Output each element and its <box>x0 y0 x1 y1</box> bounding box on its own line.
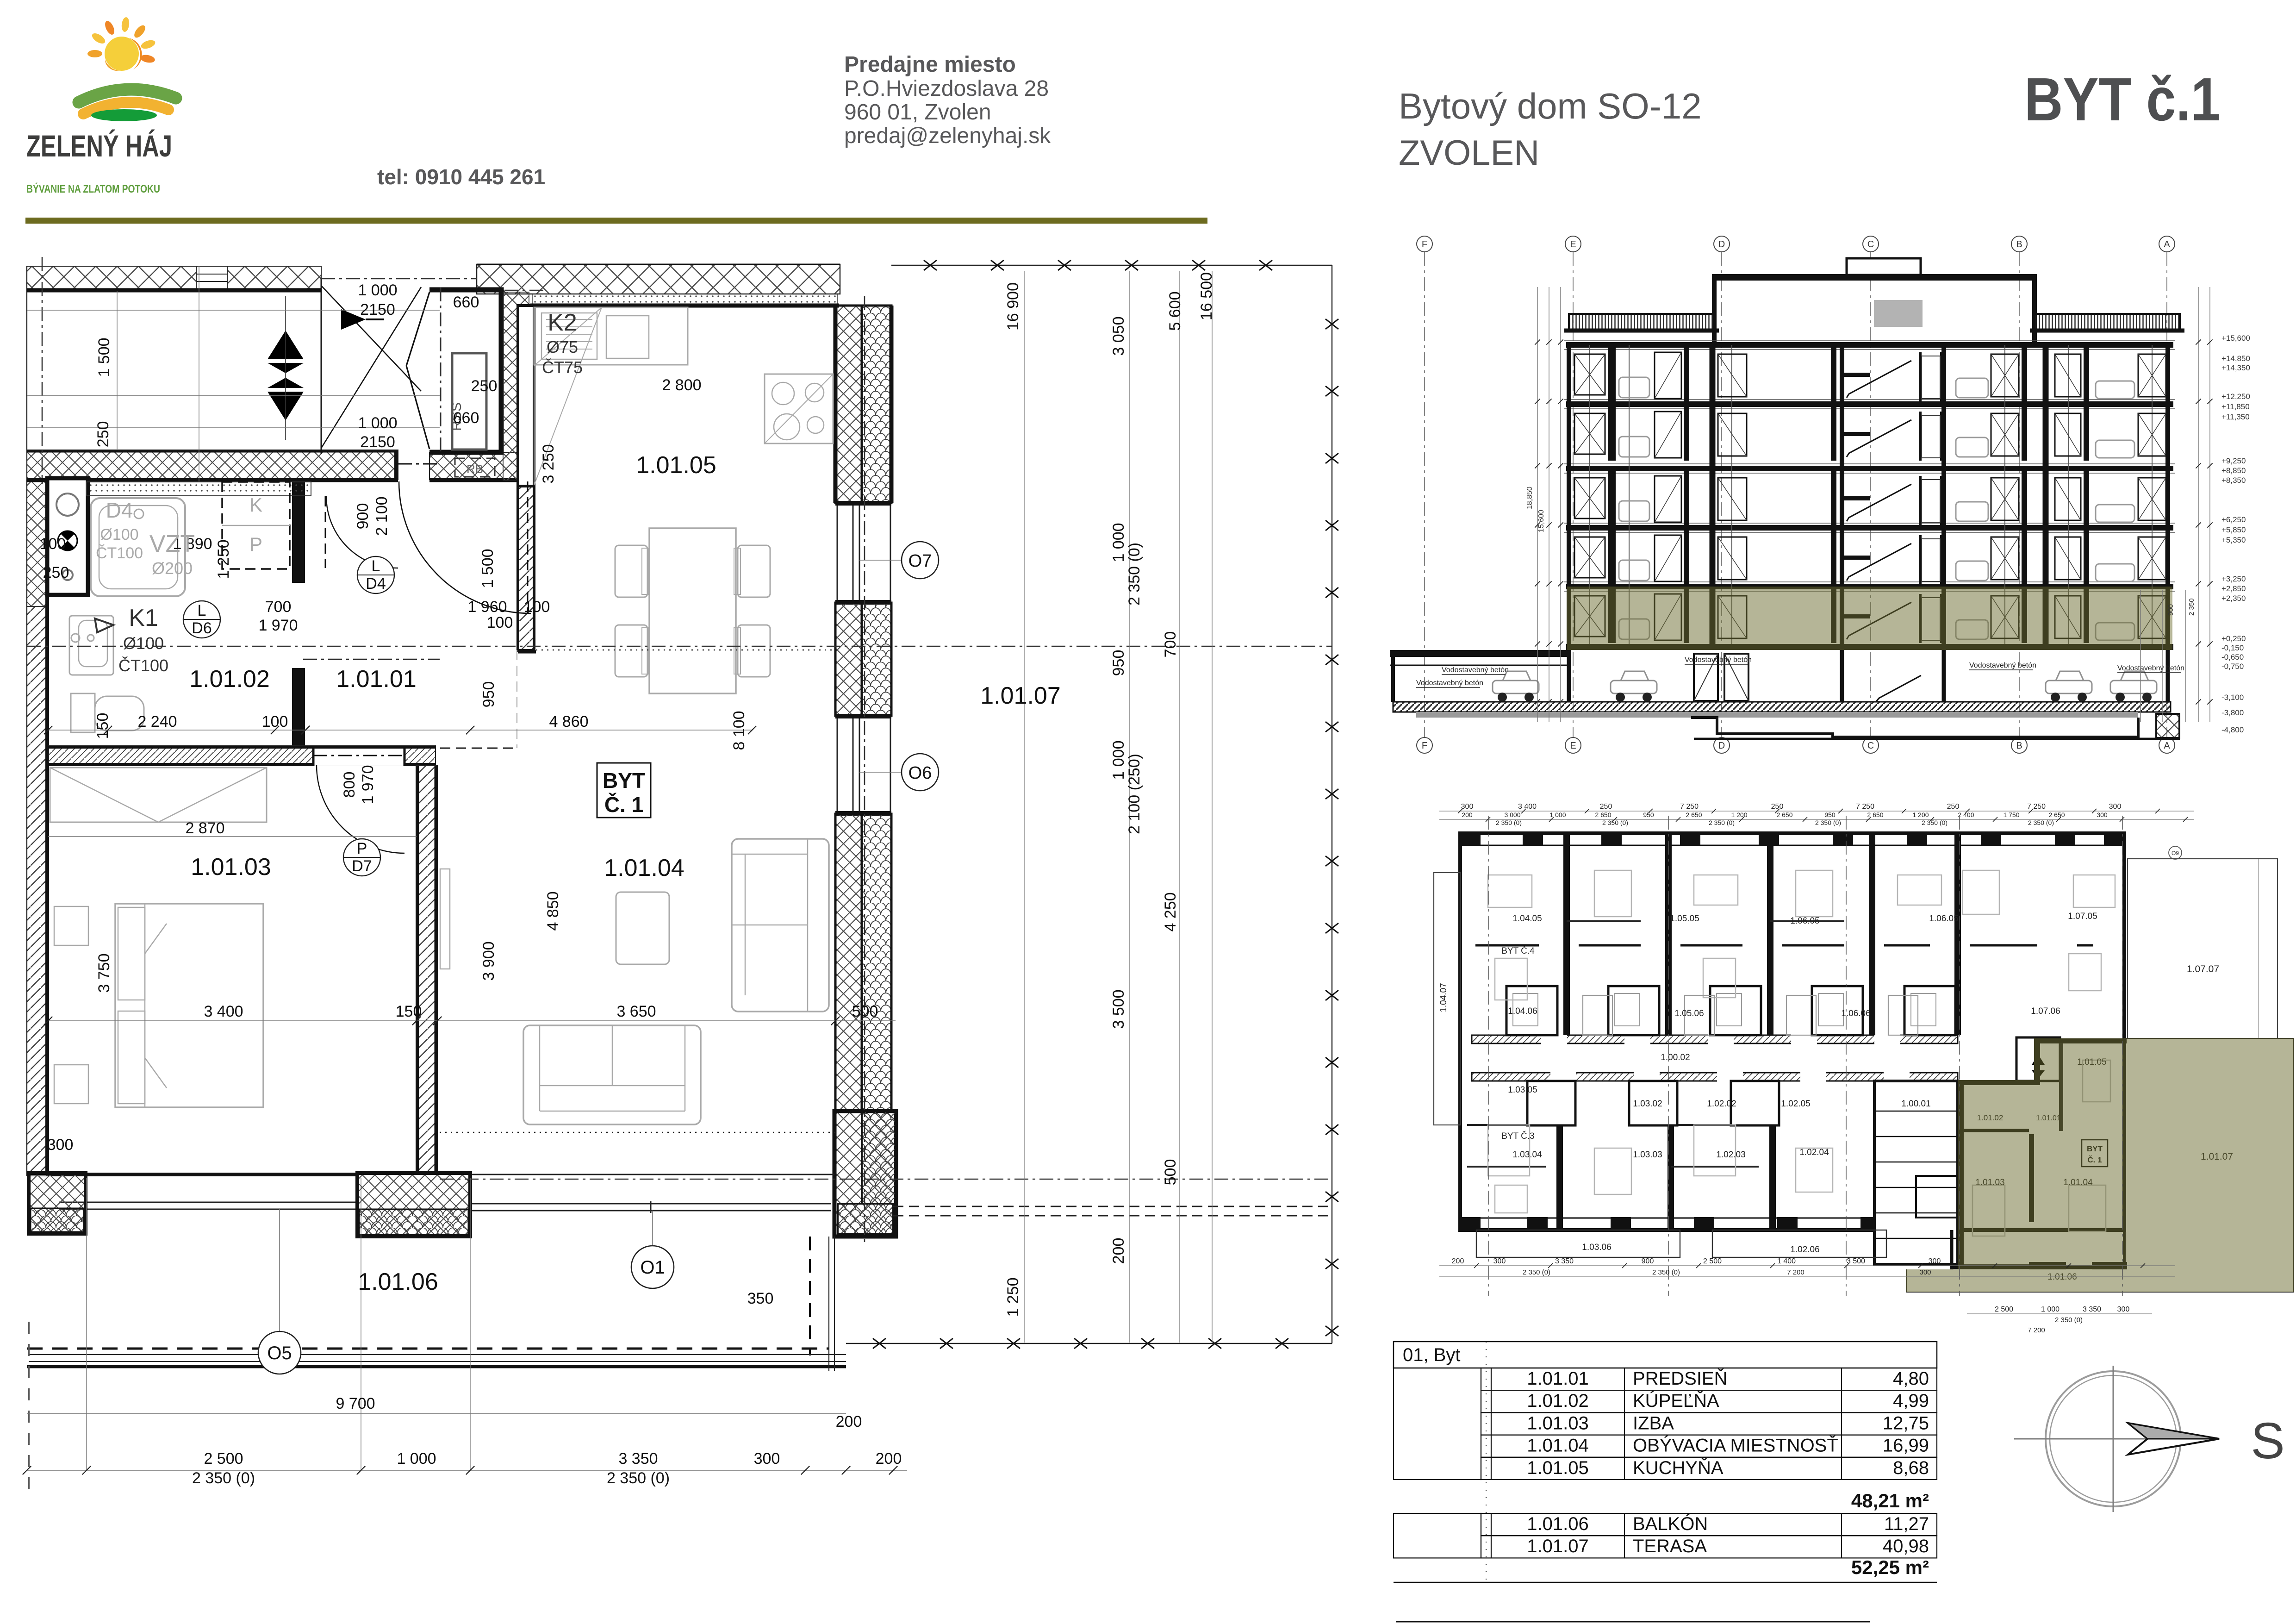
svg-text:1.01.06: 1.01.06 <box>358 1268 438 1295</box>
svg-text:D: D <box>1718 239 1725 250</box>
svg-text:+14,850: +14,850 <box>2221 354 2250 363</box>
svg-text:1.04.06: 1.04.06 <box>1508 1006 1537 1016</box>
svg-text:300: 300 <box>47 1136 74 1154</box>
svg-text:200: 200 <box>1452 1257 1464 1265</box>
svg-text:16 500: 16 500 <box>1198 272 1215 320</box>
svg-text:100: 100 <box>262 713 288 731</box>
svg-text:PREDSIEŇ: PREDSIEŇ <box>1633 1368 1728 1389</box>
svg-text:1.00.02: 1.00.02 <box>1661 1053 1690 1062</box>
svg-text:2 350: 2 350 <box>2188 598 2196 616</box>
svg-text:2 350 (0): 2 350 (0) <box>1922 819 1948 826</box>
svg-text:+6,250: +6,250 <box>2221 515 2246 524</box>
svg-text:1 750: 1 750 <box>2003 811 2019 818</box>
svg-text:K2: K2 <box>548 309 577 336</box>
svg-text:1 970: 1 970 <box>359 765 377 804</box>
svg-text:+5,350: +5,350 <box>2221 536 2246 544</box>
svg-text:800: 800 <box>341 772 358 798</box>
svg-text:IZBA: IZBA <box>1633 1413 1674 1433</box>
svg-text:250: 250 <box>471 377 498 395</box>
svg-text:1 000: 1 000 <box>397 1450 436 1468</box>
svg-text:BYT Č.4: BYT Č.4 <box>1501 946 1535 956</box>
svg-text:300: 300 <box>2117 1305 2130 1313</box>
svg-text:1 000: 1 000 <box>2041 1305 2060 1313</box>
svg-text:E: E <box>1570 239 1576 250</box>
svg-text:2 350 (0): 2 350 (0) <box>1523 1268 1550 1276</box>
svg-text:300: 300 <box>2109 803 2122 811</box>
svg-text:48,21 m²: 48,21 m² <box>1851 1490 1929 1512</box>
svg-text:RB: RB <box>467 462 483 476</box>
svg-text:1 250: 1 250 <box>1004 1277 1022 1317</box>
svg-text:300: 300 <box>1929 1257 1941 1265</box>
svg-text:3 400: 3 400 <box>204 1003 243 1020</box>
svg-text:2150: 2150 <box>360 433 395 451</box>
svg-text:P: P <box>249 533 262 555</box>
svg-text:3 350: 3 350 <box>2083 1305 2101 1313</box>
svg-text:100: 100 <box>40 535 66 553</box>
svg-text:2 500: 2 500 <box>1703 1257 1722 1265</box>
svg-text:1.04.05: 1.04.05 <box>1512 914 1542 924</box>
svg-text:1.01.02: 1.01.02 <box>1527 1391 1588 1411</box>
svg-text:1.01.01: 1.01.01 <box>1527 1368 1588 1389</box>
svg-text:S: S <box>2251 1412 2284 1469</box>
svg-text:950: 950 <box>1110 650 1127 676</box>
svg-text:Bytový dom SO-12: Bytový dom SO-12 <box>1399 86 1702 126</box>
svg-text:KÚPEĽŇA: KÚPEĽŇA <box>1633 1390 1719 1411</box>
svg-text:3 500: 3 500 <box>1847 1257 1865 1265</box>
svg-text:+2,850: +2,850 <box>2221 584 2246 593</box>
svg-text:2 650: 2 650 <box>1867 811 1883 818</box>
svg-text:2 650: 2 650 <box>1595 811 1611 818</box>
svg-text:A: A <box>2164 239 2170 250</box>
svg-text:1.06.05: 1.06.05 <box>1790 916 1819 926</box>
svg-text:2 400: 2 400 <box>1958 811 1974 818</box>
svg-text:ČT100: ČT100 <box>118 656 168 675</box>
svg-text:1.03.02: 1.03.02 <box>1633 1099 1662 1109</box>
svg-text:1 200: 1 200 <box>1731 811 1747 818</box>
svg-text:3 350: 3 350 <box>618 1450 658 1468</box>
svg-text:1.07.07: 1.07.07 <box>2187 964 2219 974</box>
svg-text:250: 250 <box>94 421 112 448</box>
svg-text:4,99: 4,99 <box>1893 1391 1929 1411</box>
svg-text:250: 250 <box>1947 803 1960 811</box>
svg-text:BALKÓN: BALKÓN <box>1633 1513 1708 1534</box>
svg-text:8 100: 8 100 <box>730 711 748 750</box>
svg-text:2 350 (0): 2 350 (0) <box>1126 543 1143 606</box>
svg-text:1.01.02: 1.01.02 <box>189 666 270 693</box>
svg-text:2 100: 2 100 <box>373 496 391 536</box>
svg-text:1.02.03: 1.02.03 <box>1716 1150 1745 1160</box>
svg-text:250: 250 <box>43 564 69 581</box>
svg-text:F: F <box>1422 239 1427 250</box>
svg-text:1.07.06: 1.07.06 <box>2031 1006 2060 1016</box>
svg-text:100: 100 <box>524 598 550 616</box>
svg-text:D6: D6 <box>192 619 212 637</box>
svg-text:700: 700 <box>1162 631 1179 658</box>
svg-text:K: K <box>249 494 262 516</box>
svg-text:+5,850: +5,850 <box>2221 525 2246 534</box>
svg-text:5 600: 5 600 <box>1166 291 1184 331</box>
svg-text:2 350 (0): 2 350 (0) <box>2055 1316 2083 1324</box>
svg-text:660: 660 <box>453 294 479 311</box>
svg-text:01, Byt: 01, Byt <box>1403 1345 1461 1365</box>
svg-text:1.04.07: 1.04.07 <box>1439 983 1449 1012</box>
svg-text:Ø100: Ø100 <box>123 634 164 653</box>
svg-text:BÝVANIE NA ZLATOM POTOKU: BÝVANIE NA ZLATOM POTOKU <box>26 182 160 195</box>
svg-text:2 350 (0): 2 350 (0) <box>1652 1268 1680 1276</box>
svg-text:15,600: 15,600 <box>1537 510 1545 532</box>
svg-text:Ø75: Ø75 <box>547 337 578 356</box>
svg-text:200: 200 <box>1462 811 1473 818</box>
svg-text:1 000: 1 000 <box>1549 811 1566 818</box>
svg-text:1 000: 1 000 <box>358 414 397 432</box>
svg-text:7 250: 7 250 <box>1680 803 1699 811</box>
svg-text:-0,150: -0,150 <box>2221 643 2244 652</box>
svg-text:4 860: 4 860 <box>549 713 588 731</box>
svg-text:L: L <box>198 602 206 619</box>
svg-text:1.02.04: 1.02.04 <box>1799 1148 1829 1157</box>
svg-text:1.01.06: 1.01.06 <box>1527 1514 1588 1534</box>
svg-text:200: 200 <box>1110 1238 1127 1264</box>
svg-text:1 000: 1 000 <box>1110 740 1127 780</box>
svg-text:1 500: 1 500 <box>95 337 113 377</box>
svg-text:1 500: 1 500 <box>479 549 497 588</box>
svg-text:P.O.Hviezdoslava 28: P.O.Hviezdoslava 28 <box>844 76 1049 101</box>
svg-text:1.03.05: 1.03.05 <box>1508 1085 1537 1095</box>
svg-text:1.03.03: 1.03.03 <box>1633 1150 1662 1160</box>
svg-text:BYT Č.3: BYT Č.3 <box>1501 1131 1534 1141</box>
svg-text:1.01.03: 1.01.03 <box>1527 1413 1588 1433</box>
svg-text:P: P <box>357 840 367 857</box>
svg-text:900: 900 <box>1642 1257 1654 1265</box>
svg-text:Vodostavebný betón: Vodostavebný betón <box>2117 664 2184 672</box>
svg-text:3 750: 3 750 <box>95 953 113 993</box>
svg-text:900: 900 <box>2167 604 2175 616</box>
svg-text:+12,250: +12,250 <box>2221 392 2250 401</box>
svg-text:2 100 (250): 2 100 (250) <box>1126 754 1143 834</box>
svg-text:A: A <box>2164 741 2170 751</box>
svg-text:2 240: 2 240 <box>137 713 177 731</box>
svg-text:9 700: 9 700 <box>336 1395 375 1412</box>
svg-text:3 050: 3 050 <box>1110 316 1127 356</box>
svg-text:1.06.06: 1.06.06 <box>1841 1009 1870 1018</box>
svg-text:200: 200 <box>876 1450 902 1468</box>
svg-text:2 350 (0): 2 350 (0) <box>1709 819 1735 826</box>
svg-text:C: C <box>1867 741 1874 751</box>
svg-text:3 900: 3 900 <box>480 941 498 981</box>
svg-text:3 000: 3 000 <box>1504 811 1520 818</box>
svg-text:ČT75: ČT75 <box>542 358 583 377</box>
svg-text:2 350 (0): 2 350 (0) <box>607 1469 670 1487</box>
svg-text:2 800: 2 800 <box>662 376 701 394</box>
svg-text:7 200: 7 200 <box>1787 1268 1804 1276</box>
svg-text:1.02.02: 1.02.02 <box>1707 1099 1736 1109</box>
svg-text:7 250: 7 250 <box>2027 803 2046 811</box>
svg-text:300: 300 <box>1461 803 1474 811</box>
svg-text:1 400: 1 400 <box>1777 1257 1796 1265</box>
svg-text:2 350 (0): 2 350 (0) <box>1815 819 1841 826</box>
svg-text:1.02.06: 1.02.06 <box>1790 1245 1819 1255</box>
svg-text:+8,350: +8,350 <box>2221 476 2246 485</box>
svg-text:960 01, Zvolen: 960 01, Zvolen <box>844 100 991 125</box>
svg-text:2 500: 2 500 <box>1995 1305 2013 1313</box>
svg-text:1.03.06: 1.03.06 <box>1582 1243 1611 1252</box>
svg-text:2 350 (0): 2 350 (0) <box>1602 819 1628 826</box>
svg-text:1 200: 1 200 <box>1912 811 1929 818</box>
svg-text:2 650: 2 650 <box>2048 811 2065 818</box>
svg-text:K1: K1 <box>129 605 158 631</box>
svg-text:2150: 2150 <box>360 301 395 319</box>
svg-text:16,99: 16,99 <box>1883 1436 1929 1456</box>
svg-text:150: 150 <box>94 713 112 739</box>
svg-text:1.07.05: 1.07.05 <box>2068 912 2097 921</box>
svg-text:Predajne miesto: Predajne miesto <box>844 52 1016 77</box>
svg-text:Vodostavebný betón: Vodostavebný betón <box>1685 656 1752 664</box>
svg-text:BYT č.1: BYT č.1 <box>2024 65 2221 133</box>
svg-text:2 650: 2 650 <box>1776 811 1792 818</box>
svg-text:12,75: 12,75 <box>1883 1413 1929 1433</box>
svg-text:4 850: 4 850 <box>544 891 562 931</box>
svg-text:1.03.04: 1.03.04 <box>1512 1150 1542 1160</box>
svg-text:TERASA: TERASA <box>1633 1536 1707 1556</box>
svg-text:3 500: 3 500 <box>1110 989 1127 1029</box>
svg-text:300: 300 <box>754 1450 780 1468</box>
svg-text:-0,750: -0,750 <box>2221 662 2244 671</box>
svg-text:1.01.07: 1.01.07 <box>980 682 1061 709</box>
svg-text:ČT100: ČT100 <box>96 544 143 562</box>
svg-text:2 650: 2 650 <box>1686 811 1702 818</box>
svg-text:300: 300 <box>2097 811 2108 818</box>
svg-text:+2,350: +2,350 <box>2221 594 2246 603</box>
svg-text:200: 200 <box>836 1413 862 1430</box>
svg-text:Vodostavebný betón: Vodostavebný betón <box>1416 679 1483 687</box>
svg-text:O9: O9 <box>2172 850 2179 856</box>
svg-text:11,27: 11,27 <box>1884 1514 1929 1534</box>
svg-text:40,98: 40,98 <box>1883 1536 1929 1556</box>
svg-text:7 250: 7 250 <box>1856 803 1874 811</box>
svg-text:1.01.05: 1.01.05 <box>1527 1458 1588 1478</box>
svg-text:KUCHYŇA: KUCHYŇA <box>1633 1457 1724 1478</box>
svg-text:2 500: 2 500 <box>204 1450 243 1468</box>
svg-text:1 000: 1 000 <box>358 281 397 299</box>
svg-text:BYT: BYT <box>603 768 645 793</box>
svg-text:ZVOLEN: ZVOLEN <box>1399 133 1539 173</box>
svg-text:500: 500 <box>1162 1159 1179 1186</box>
svg-text:O5: O5 <box>267 1343 292 1363</box>
svg-text:D: D <box>1718 741 1725 751</box>
svg-text:950: 950 <box>1643 811 1654 818</box>
svg-text:E: E <box>1570 741 1576 751</box>
svg-text:1 250: 1 250 <box>215 539 232 579</box>
svg-text:250: 250 <box>1771 803 1784 811</box>
svg-text:+8,850: +8,850 <box>2221 466 2246 475</box>
svg-text:-0,650: -0,650 <box>2221 653 2244 662</box>
svg-text:predaj@zelenyhaj.sk: predaj@zelenyhaj.sk <box>844 124 1051 148</box>
svg-text:1 000: 1 000 <box>1110 523 1127 562</box>
svg-text:3 250: 3 250 <box>540 444 557 483</box>
svg-text:F: F <box>1422 741 1427 751</box>
svg-text:300: 300 <box>1919 1268 1931 1276</box>
svg-text:1 970: 1 970 <box>258 617 298 634</box>
svg-text:16 900: 16 900 <box>1004 282 1022 331</box>
svg-text:Č. 1: Č. 1 <box>604 793 643 817</box>
svg-text:1.05.05: 1.05.05 <box>1670 914 1699 924</box>
svg-text:4 250: 4 250 <box>1162 892 1179 931</box>
svg-text:+14,350: +14,350 <box>2221 363 2250 372</box>
svg-text:1.01.03: 1.01.03 <box>191 854 271 881</box>
svg-text:250: 250 <box>1600 803 1612 811</box>
svg-text:+15,600: +15,600 <box>2221 334 2250 343</box>
svg-text:1.01.05: 1.01.05 <box>636 452 716 479</box>
svg-text:O1: O1 <box>640 1257 665 1278</box>
svg-text:1.01.04: 1.01.04 <box>604 855 684 881</box>
svg-text:O6: O6 <box>908 763 932 783</box>
svg-text:+11,350: +11,350 <box>2221 412 2250 421</box>
svg-text:1.01.04: 1.01.04 <box>1527 1436 1588 1456</box>
svg-text:D7: D7 <box>352 857 372 875</box>
svg-text:2 350 (0): 2 350 (0) <box>192 1469 255 1487</box>
svg-text:1.06.05: 1.06.05 <box>1929 914 1958 924</box>
svg-text:D4: D4 <box>106 498 133 522</box>
svg-text:3 650: 3 650 <box>616 1003 656 1020</box>
svg-text:Vodostavebný betón: Vodostavebný betón <box>1442 666 1509 674</box>
svg-text:L: L <box>372 557 380 575</box>
svg-text:VZT: VZT <box>149 531 195 557</box>
svg-text:300: 300 <box>1493 1257 1506 1265</box>
svg-text:8,68: 8,68 <box>1893 1458 1929 1478</box>
svg-text:B: B <box>2016 239 2022 250</box>
svg-text:B: B <box>2016 741 2022 751</box>
svg-text:-4,800: -4,800 <box>2221 725 2244 734</box>
svg-text:D4: D4 <box>366 575 386 593</box>
svg-text:900: 900 <box>354 503 372 530</box>
svg-text:+3,250: +3,250 <box>2221 575 2246 583</box>
svg-text:150: 150 <box>396 1003 422 1020</box>
svg-text:2 350 (0): 2 350 (0) <box>2028 819 2054 826</box>
svg-text:1.02.05: 1.02.05 <box>1781 1099 1810 1109</box>
svg-text:C: C <box>1867 239 1874 250</box>
svg-text:500: 500 <box>852 1003 878 1020</box>
svg-text:OBÝVACIA MIESTNOSŤ: OBÝVACIA MIESTNOSŤ <box>1633 1435 1838 1456</box>
svg-text:950: 950 <box>480 681 498 708</box>
svg-text:700: 700 <box>265 598 292 616</box>
svg-text:ZELENÝ HÁJ: ZELENÝ HÁJ <box>26 129 172 163</box>
svg-text:4,80: 4,80 <box>1893 1368 1929 1389</box>
svg-text:950: 950 <box>1824 811 1836 818</box>
svg-text:100: 100 <box>487 614 513 631</box>
svg-text:+0,250: +0,250 <box>2221 634 2246 643</box>
svg-text:tel: 0910 445 261: tel: 0910 445 261 <box>377 165 545 189</box>
svg-text:1.00.01: 1.00.01 <box>1901 1099 1930 1109</box>
svg-text:7 200: 7 200 <box>2028 1326 2045 1334</box>
svg-text:-3,100: -3,100 <box>2221 693 2244 702</box>
svg-text:Ø100: Ø100 <box>100 526 138 543</box>
svg-text:2 870: 2 870 <box>185 819 224 837</box>
svg-text:Vodostavebný betón: Vodostavebný betón <box>1969 662 2036 669</box>
svg-text:1.05.06: 1.05.06 <box>1674 1009 1704 1018</box>
svg-text:2 350 (0): 2 350 (0) <box>1496 819 1522 826</box>
svg-text:1.01.01: 1.01.01 <box>336 666 417 693</box>
svg-text:-3,800: -3,800 <box>2221 708 2244 717</box>
svg-text:18,850: 18,850 <box>1526 487 1534 509</box>
svg-text:3 350: 3 350 <box>1555 1257 1574 1265</box>
svg-text:Ø200: Ø200 <box>152 559 193 578</box>
svg-text:1.01.07: 1.01.07 <box>1527 1536 1588 1556</box>
svg-text:+11,850: +11,850 <box>2221 402 2250 411</box>
svg-text:1 960: 1 960 <box>467 598 507 616</box>
svg-text:3 400: 3 400 <box>1518 803 1537 811</box>
svg-text:660: 660 <box>453 409 479 427</box>
svg-text:52,25 m²: 52,25 m² <box>1851 1556 1929 1578</box>
svg-text:+9,250: +9,250 <box>2221 456 2246 465</box>
svg-text:O7: O7 <box>908 551 932 571</box>
svg-text:350: 350 <box>747 1290 774 1307</box>
